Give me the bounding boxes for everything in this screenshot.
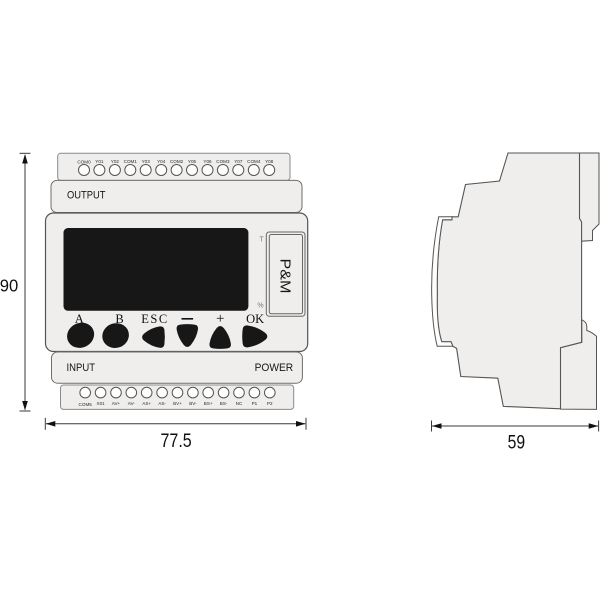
svg-text:AV+: AV+ [112,401,121,406]
svg-text:AV-: AV- [128,401,136,406]
svg-text:COM0: COM0 [77,159,91,164]
svg-text:COM4: COM4 [247,159,261,164]
svg-text:77.5: 77.5 [161,431,192,452]
svg-text:Y07: Y07 [234,159,243,164]
svg-text:NC: NC [236,401,243,406]
svg-text:P2: P2 [267,401,273,406]
svg-text:OUTPUT: OUTPUT [67,190,106,202]
svg-text:COM3: COM3 [216,159,230,164]
svg-text:%: % [257,303,263,310]
svg-text:Y03: Y03 [142,159,151,164]
svg-text:ESC: ESC [141,312,168,326]
svg-text:Y04: Y04 [157,159,166,164]
svg-text:BS+: BS+ [204,401,213,406]
svg-text:Y06: Y06 [203,159,212,164]
svg-text:Y05: Y05 [188,159,197,164]
svg-text:COM5: COM5 [79,402,93,407]
svg-text:BV-: BV- [189,401,197,406]
svg-text:Y01: Y01 [95,159,104,164]
svg-text:Y02: Y02 [111,159,120,164]
svg-text:AS-: AS- [158,401,166,406]
svg-text:+: + [216,311,224,327]
svg-text:COM2: COM2 [170,159,184,164]
svg-text:P1: P1 [252,401,258,406]
svg-text:X01: X01 [97,401,106,406]
svg-text:COM1: COM1 [124,159,138,164]
svg-text:59: 59 [508,433,525,454]
svg-text:P&M: P&M [277,259,294,294]
svg-text:AS+: AS+ [142,401,151,406]
svg-text:BS-: BS- [220,401,228,406]
svg-text:BV+: BV+ [173,401,182,406]
svg-text:OK: OK [246,312,264,326]
svg-text:T: T [259,237,264,244]
svg-text:INPUT: INPUT [67,362,96,374]
svg-text:POWER: POWER [255,362,294,374]
svg-text:Y08: Y08 [265,159,274,164]
svg-text:90: 90 [0,276,18,296]
